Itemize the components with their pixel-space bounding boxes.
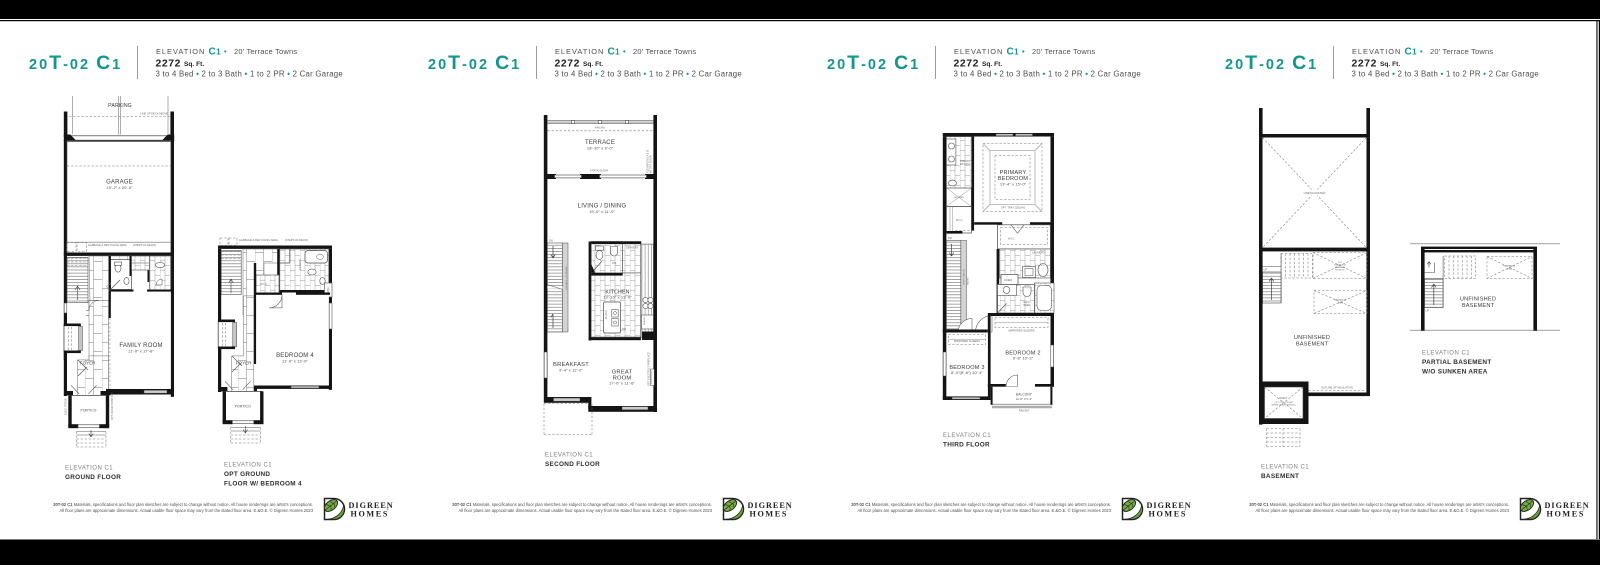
svg-text:ELEV. STONE: ELEV. STONE xyxy=(64,398,68,415)
svg-text:OUTLINE OF INSULATION: OUTLINE OF INSULATION xyxy=(1321,386,1353,390)
svg-text:ELEVATION C1: ELEVATION C1 xyxy=(1422,351,1470,357)
svg-text:MECHANICAL: MECHANICAL xyxy=(1503,265,1515,268)
svg-text:10’-8” X 5’-3”: 10’-8” X 5’-3” xyxy=(1016,397,1032,401)
svg-text:ENSUITE: ENSUITE xyxy=(298,258,302,270)
svg-text:RAILING: RAILING xyxy=(1019,409,1029,413)
svg-text:BASEMENT: BASEMENT xyxy=(1261,473,1299,480)
svg-text:8’-0”(8’-6”) 10’-4”: 8’-0”(8’-6”) 10’-4” xyxy=(951,370,983,375)
svg-text:W/O SUNKEN AREA: W/O SUNKEN AREA xyxy=(1422,368,1488,375)
svg-text:11’-0” x 17’-8”: 11’-0” x 17’-8” xyxy=(128,349,154,354)
svg-text:13’-10” x 13’-0”: 13’-10” x 13’-0” xyxy=(603,295,632,300)
svg-text:(STEPS AS REQ’D): (STEPS AS REQ’D) xyxy=(285,238,308,242)
svg-text:UP: UP xyxy=(1264,268,1268,272)
svg-text:UP: UP xyxy=(1426,309,1430,313)
svg-text:LINE OF DECK ABOVE: LINE OF DECK ABOVE xyxy=(140,112,168,116)
svg-text:9’-4” x 12’-2”: 9’-4” x 12’-2” xyxy=(559,368,583,373)
svg-text:MAIN: MAIN xyxy=(1024,301,1030,304)
svg-text:PARKING: PARKING xyxy=(108,103,132,109)
svg-text:OPT GROUND: OPT GROUND xyxy=(224,471,270,478)
svg-text:THIRD FLOOR: THIRD FLOOR xyxy=(943,441,990,448)
svg-text:19’-2” x 20’-0”: 19’-2” x 20’-0” xyxy=(106,185,133,190)
svg-text:ELEVATION C1: ELEVATION C1 xyxy=(65,466,113,472)
svg-text:W.I.C.: W.I.C. xyxy=(956,218,963,222)
svg-text:UNEX.: UNEX. xyxy=(1279,396,1288,400)
svg-text:W/ OPT DOOR: W/ OPT DOOR xyxy=(649,155,653,173)
svg-text:UNFINISHED: UNFINISHED xyxy=(1460,297,1496,303)
svg-text:BASEMENT: BASEMENT xyxy=(1296,342,1329,348)
svg-text:LAUNDRY: LAUNDRY xyxy=(1032,251,1045,255)
svg-text:4 PATIO DOOR: 4 PATIO DOOR xyxy=(590,169,608,173)
svg-text:DN: DN xyxy=(549,239,553,243)
svg-text:MIRRORED SLIDERS: MIRRORED SLIDERS xyxy=(1009,329,1035,333)
svg-text:ELEVATION C1: ELEVATION C1 xyxy=(224,463,272,469)
svg-text:BATH: BATH xyxy=(1024,304,1030,307)
svg-text:MIRRORED SLIDERS: MIRRORED SLIDERS xyxy=(954,339,980,343)
svg-text:ELEVATION C1: ELEVATION C1 xyxy=(1261,465,1309,471)
svg-text:PORTICO: PORTICO xyxy=(235,405,251,409)
svg-text:DN: DN xyxy=(948,236,952,240)
svg-text:RAILING: RAILING xyxy=(966,277,969,285)
svg-text:AS REQ’D): AS REQ’D) xyxy=(1335,269,1345,272)
svg-text:WHERE GRADE PERMITS): WHERE GRADE PERMITS) xyxy=(1272,404,1296,407)
svg-text:SHOWER: SHOWER xyxy=(954,197,964,199)
svg-text:GARBAGE & RECYCLING AREA: GARBAGE & RECYCLING AREA xyxy=(239,238,278,242)
svg-text:PORTICO: PORTICO xyxy=(80,409,96,413)
svg-text:(STEPS AS REQ’D): (STEPS AS REQ’D) xyxy=(133,243,156,247)
svg-text:AREA: AREA xyxy=(1507,267,1513,270)
svg-text:ELEVATION C1: ELEVATION C1 xyxy=(943,433,991,439)
svg-text:PRIMARY: PRIMARY xyxy=(960,160,971,163)
svg-text:9’-8” 10’-2”: 9’-8” 10’-2” xyxy=(1013,356,1034,361)
svg-text:W/D: W/D xyxy=(1041,265,1045,267)
svg-text:FRIDGE: FRIDGE xyxy=(644,316,646,325)
svg-text:W.I.C.: W.I.C. xyxy=(260,282,268,286)
svg-text:FOYER: FOYER xyxy=(236,361,251,366)
svg-text:ENSUITE: ENSUITE xyxy=(960,164,970,166)
svg-text:LOW WALL / OPT RAILING: LOW WALL / OPT RAILING xyxy=(565,266,568,290)
svg-text:19’-0” x 11’-0”: 19’-0” x 11’-0” xyxy=(589,209,615,214)
svg-text:PARTIAL BASEMENT: PARTIAL BASEMENT xyxy=(1422,359,1492,366)
svg-text:ISLAND: ISLAND xyxy=(605,310,608,319)
svg-text:GROUND FLOOR: GROUND FLOOR xyxy=(65,474,121,481)
svg-text:GARBAGE & RECYCLING AREA: GARBAGE & RECYCLING AREA xyxy=(88,243,127,247)
svg-text:13’-4” x 15’-0”: 13’-4” x 15’-0” xyxy=(1000,182,1027,187)
svg-text:17’-0” x 11’-6”: 17’-0” x 11’-6” xyxy=(609,381,635,386)
svg-text:OPEN TO BELOW: OPEN TO BELOW xyxy=(964,269,966,285)
svg-text:OPT. DOOR POSITION: OPT. DOOR POSITION xyxy=(110,392,114,420)
svg-text:LINEN: LINEN xyxy=(1004,278,1012,282)
svg-text:11’-0” x 13’-0”: 11’-0” x 13’-0” xyxy=(282,359,308,364)
svg-text:UNEXCAVATED: UNEXCAVATED xyxy=(1304,191,1327,195)
svg-text:(OPT. COLD CELLAR: (OPT. COLD CELLAR xyxy=(1274,401,1293,404)
svg-text:OPT ELECTRIC FIREPLACE: OPT ELECTRIC FIREPLACE xyxy=(647,352,651,386)
svg-text:MECHANICAL: MECHANICAL xyxy=(1334,299,1346,302)
svg-text:BALCONY: BALCONY xyxy=(1016,393,1033,397)
svg-text:SERVERY: SERVERY xyxy=(626,246,639,250)
svg-text:18’-10” x 9’-0”: 18’-10” x 9’-0” xyxy=(587,146,614,151)
svg-text:P.R.: P.R. xyxy=(612,261,617,265)
svg-text:FLOOR W/ BEDROOM 4: FLOOR W/ BEDROOM 4 xyxy=(224,480,302,487)
svg-text:BASEMENT: BASEMENT xyxy=(1462,303,1495,309)
svg-text:UNFINISHED: UNFINISHED xyxy=(1294,335,1330,341)
svg-text:W.I.C.: W.I.C. xyxy=(1008,237,1015,241)
svg-text:AREA: AREA xyxy=(1338,302,1344,305)
svg-text:RAILING: RAILING xyxy=(595,125,605,129)
svg-text:OPT. TRAY CEILING: OPT. TRAY CEILING xyxy=(1001,206,1025,210)
svg-text:ELEVATION C1: ELEVATION C1 xyxy=(545,453,593,459)
svg-text:SECOND FLOOR: SECOND FLOOR xyxy=(545,461,600,468)
svg-text:FOYER: FOYER xyxy=(80,361,95,366)
